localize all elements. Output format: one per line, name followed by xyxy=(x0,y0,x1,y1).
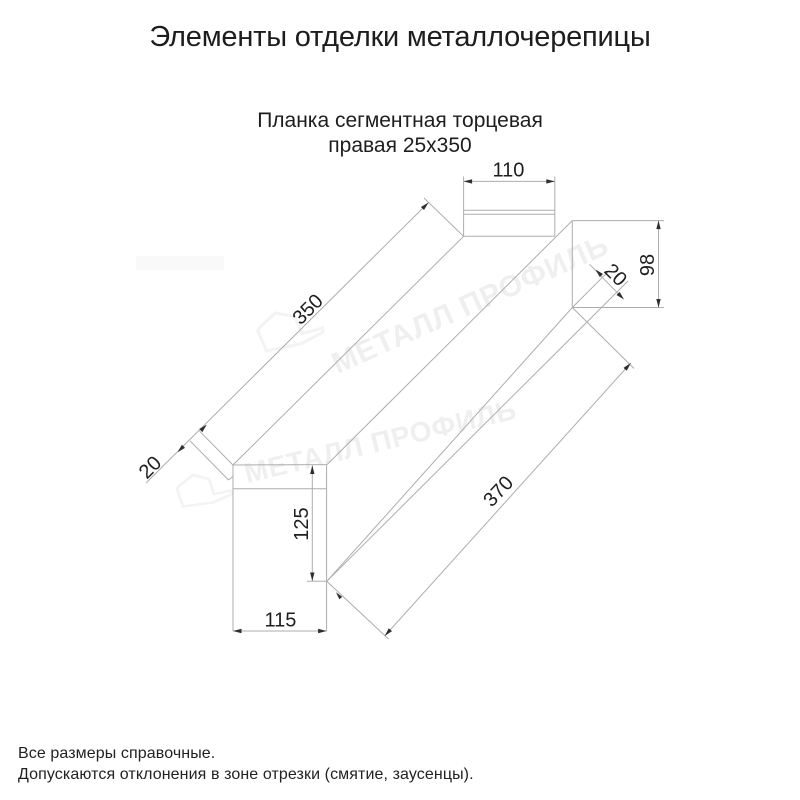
svg-text:МЕТАЛЛ ПРОФИЛЬ: МЕТАЛЛ ПРОФИЛЬ xyxy=(241,394,519,489)
svg-text:20: 20 xyxy=(600,260,631,291)
svg-text:20: 20 xyxy=(135,452,166,483)
svg-text:370: 370 xyxy=(479,472,518,511)
svg-text:350: 350 xyxy=(289,290,328,329)
svg-text:110: 110 xyxy=(493,160,525,182)
svg-text:98: 98 xyxy=(637,254,659,276)
svg-text:115: 115 xyxy=(265,610,297,632)
svg-text:МЕТАЛЛ ПРОФИЛЬ: МЕТАЛЛ ПРОФИЛЬ xyxy=(327,229,614,381)
svg-text:125: 125 xyxy=(291,507,313,540)
